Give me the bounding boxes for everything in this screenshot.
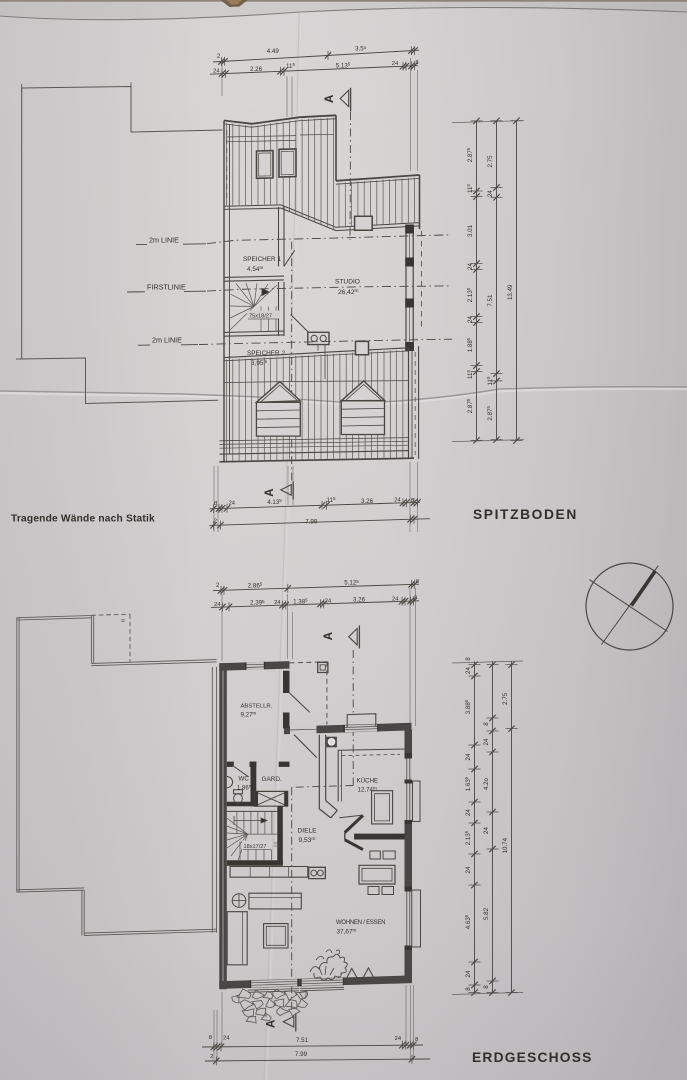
- svg-text:24: 24: [487, 190, 494, 197]
- svg-text:24: 24: [223, 1036, 230, 1042]
- svg-text:24: 24: [483, 738, 490, 745]
- svg-text:2m LINIE: 2m LINIE: [149, 235, 179, 244]
- svg-text:GARD.: GARD.: [262, 776, 282, 783]
- svg-text:18x17/27: 18x17/27: [244, 844, 267, 850]
- svg-text:8: 8: [209, 1035, 212, 1041]
- svg-text:2: 2: [210, 1054, 213, 1060]
- svg-text:24: 24: [392, 61, 399, 67]
- svg-text:24: 24: [465, 970, 472, 977]
- svg-text:24: 24: [467, 263, 474, 270]
- svg-text:8: 8: [465, 987, 472, 991]
- svg-text:4.49: 4.49: [267, 48, 280, 55]
- svg-text:24: 24: [467, 316, 474, 323]
- svg-text:2m LINIE: 2m LINIE: [152, 336, 182, 345]
- svg-text:7.99: 7.99: [295, 1051, 308, 1058]
- svg-text:24: 24: [465, 753, 472, 760]
- svg-text:FIRSTLINIE: FIRSTLINIE: [147, 283, 186, 292]
- svg-text:A: A: [264, 488, 276, 496]
- svg-text:24: 24: [214, 602, 221, 608]
- svg-text:24: 24: [229, 500, 236, 506]
- svg-text:24: 24: [213, 68, 220, 74]
- svg-text:3.26: 3.26: [361, 498, 374, 505]
- svg-text:10.74: 10.74: [502, 837, 509, 853]
- svg-text:WC: WC: [239, 776, 250, 783]
- svg-text:KÜCHE: KÜCHE: [357, 778, 379, 785]
- svg-text:24: 24: [325, 598, 332, 604]
- svg-text:24: 24: [465, 866, 472, 873]
- svg-text:8: 8: [483, 985, 490, 989]
- svg-text:24: 24: [395, 1036, 402, 1042]
- svg-text:8: 8: [465, 657, 472, 661]
- svg-text:8: 8: [411, 498, 414, 504]
- svg-text:8: 8: [214, 501, 217, 507]
- svg-text:A: A: [323, 632, 335, 640]
- svg-text:2.26: 2.26: [250, 66, 263, 73]
- svg-text:24: 24: [465, 667, 472, 674]
- svg-text:3.01: 3.01: [467, 224, 474, 237]
- svg-text:ERDGESCHOSS: ERDGESCHOSS: [472, 1050, 593, 1065]
- svg-text:2.75: 2.75: [502, 692, 509, 705]
- svg-text:ABSTELLR.: ABSTELLR.: [241, 704, 273, 710]
- svg-text:24: 24: [394, 498, 401, 504]
- svg-text:24: 24: [465, 809, 472, 816]
- svg-text:75x18/27: 75x18/27: [249, 314, 272, 320]
- svg-text:24: 24: [483, 827, 490, 834]
- svg-text:A: A: [266, 1020, 278, 1028]
- svg-text:5.82: 5.82: [483, 907, 490, 920]
- svg-text:DIELE: DIELE: [298, 828, 318, 835]
- svg-text:4.2o: 4.2o: [483, 777, 490, 790]
- svg-text:STUDIO: STUDIO: [335, 279, 360, 286]
- svg-text:8: 8: [483, 722, 490, 726]
- svg-text:24: 24: [274, 600, 281, 606]
- svg-text:Tragende Wände nach Statik: Tragende Wände nach Statik: [11, 514, 155, 525]
- svg-text:7.51: 7.51: [487, 294, 494, 307]
- svg-text:24: 24: [392, 596, 399, 602]
- svg-text:2.75: 2.75: [487, 155, 494, 168]
- svg-text:8: 8: [415, 1037, 418, 1043]
- svg-text:3.26: 3.26: [353, 596, 366, 603]
- svg-text:8: 8: [415, 60, 418, 66]
- svg-text:⌗: ⌗: [121, 618, 125, 625]
- svg-text:8: 8: [416, 579, 419, 585]
- svg-text:SPEICHER 1: SPEICHER 1: [243, 256, 281, 263]
- svg-text:WOHNEN / ESSEN: WOHNEN / ESSEN: [336, 920, 385, 926]
- svg-text:7.51: 7.51: [296, 1037, 309, 1044]
- svg-text:7.99: 7.99: [305, 519, 318, 526]
- svg-text:13.49: 13.49: [507, 284, 514, 300]
- svg-text:SPITZBODEN: SPITZBODEN: [473, 507, 578, 522]
- svg-text:A: A: [324, 95, 336, 103]
